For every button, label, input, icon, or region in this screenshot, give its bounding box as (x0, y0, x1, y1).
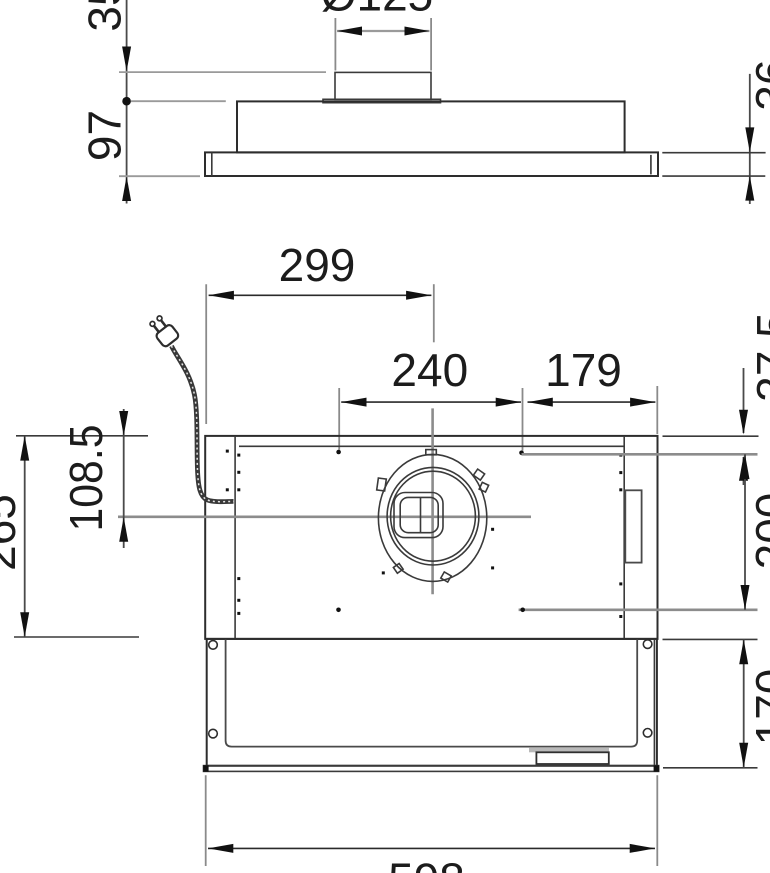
svg-text:265: 265 (0, 494, 25, 571)
svg-text:299: 299 (279, 239, 356, 291)
svg-text:97: 97 (79, 110, 131, 161)
svg-text:598: 598 (388, 853, 465, 873)
svg-text:240: 240 (391, 344, 468, 396)
svg-text:179: 179 (545, 344, 622, 396)
svg-text:36: 36 (746, 59, 770, 110)
svg-text:200: 200 (746, 493, 770, 570)
svg-text:37.5: 37.5 (747, 312, 770, 402)
svg-text:108.5: 108.5 (60, 425, 112, 532)
svg-text:170: 170 (746, 669, 770, 746)
svg-text:35: 35 (79, 0, 131, 32)
svg-text:Ø125: Ø125 (321, 0, 434, 21)
